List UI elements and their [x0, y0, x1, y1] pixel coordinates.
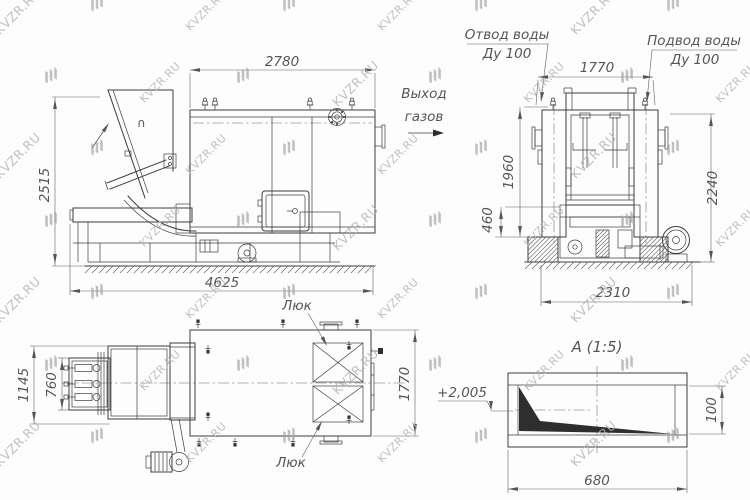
plan-dim-760: 760 — [44, 372, 60, 398]
side-dim-height: 2515 — [37, 168, 53, 202]
water-outlet-label-line2: Ду 100 — [482, 46, 532, 62]
water-inlet-label-line2: Ду 100 — [670, 52, 720, 68]
front-dim-2310: 2310 — [596, 285, 630, 301]
weld-wedge — [519, 387, 673, 434]
gas-exit-arrow-icon — [433, 130, 444, 137]
front-dim-1960: 1960 — [501, 155, 517, 189]
side-view: 2780 2515 4625 ∩ — [37, 54, 385, 295]
detail-dim-680: 680 — [584, 473, 610, 489]
plan-view: Люк Люк 1145 760 1770 — [16, 298, 419, 472]
side-dim-length: 4625 — [205, 275, 239, 291]
water-inlet-label-line1: Подвод воды — [647, 33, 741, 49]
generated-details — [32, 68, 724, 491]
front-dim-2240: 2240 — [705, 171, 721, 205]
detail-elevation: +2,005 — [437, 385, 487, 401]
plan-dim-1145: 1145 — [16, 368, 32, 402]
front-dim-460: 460 — [480, 207, 496, 233]
drawing-canvas: 2780 2515 4625 ∩ — [0, 0, 750, 500]
gas-exit-label-line1: Выход — [401, 86, 447, 102]
hatch-label-top: Люк — [281, 298, 313, 314]
hatch-label-bottom: Люк — [275, 455, 307, 471]
front-dim-width: 1770 — [580, 60, 614, 76]
detail-dim-100: 100 — [704, 397, 720, 423]
water-outlet-label-line1: Отвод воды — [465, 27, 550, 43]
hopper-mark: ∩ — [137, 116, 146, 130]
technical-drawing: 2780 2515 4625 ∩ — [0, 0, 750, 500]
detail-title: А (1:5) — [571, 338, 623, 356]
gas-exit-label-line2: газов — [405, 109, 444, 125]
plan-dim-1770: 1770 — [397, 367, 413, 401]
detail-view: А (1:5) +2,005 680 100 — [437, 338, 726, 493]
side-dim-width: 2780 — [265, 54, 299, 70]
front-view: Отвод воды Ду 100 Подвод воды Ду 100 Вых… — [401, 27, 741, 306]
